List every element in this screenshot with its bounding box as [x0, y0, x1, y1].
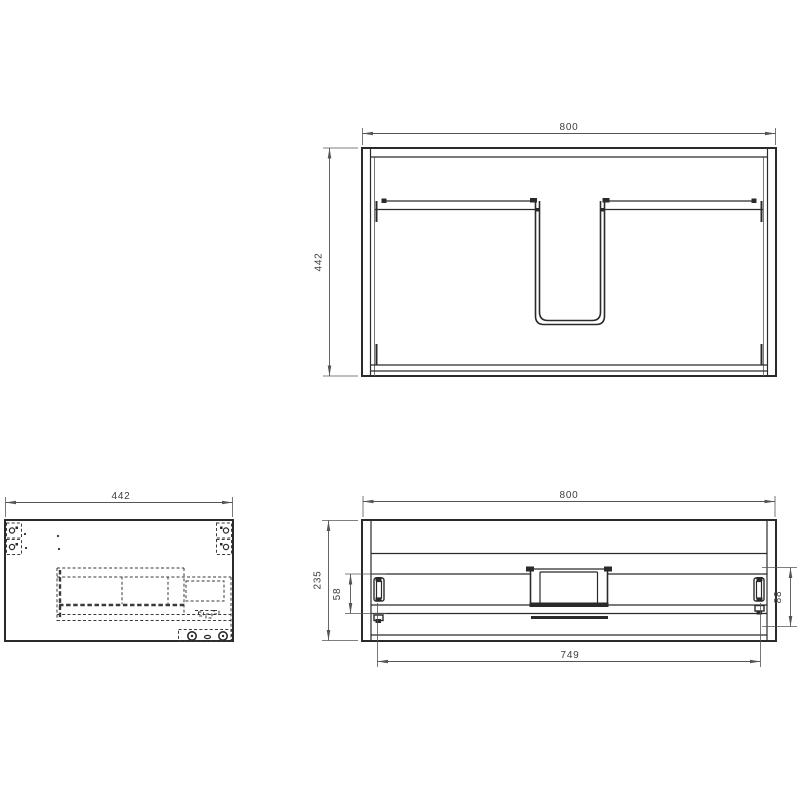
drawer-back-edge	[375, 198, 763, 365]
dim-label-rail-height: 88	[773, 591, 784, 604]
dim-width-top-view: 800	[363, 122, 776, 145]
dim-label-opening-width: 749	[560, 650, 579, 661]
cam-pin	[220, 543, 223, 546]
dim-depth-top-view: 442	[314, 148, 359, 376]
hole-mark	[24, 533, 26, 535]
drawer-hidden-outline	[57, 568, 232, 641]
end-cap	[603, 198, 610, 203]
bracket-cap	[757, 577, 763, 581]
front-view: 800 235 58 88 749	[313, 490, 798, 667]
drawer-slide-bracket-right	[754, 577, 764, 615]
dim-label-front-width: 800	[559, 490, 578, 501]
drawer-slide-bracket-left	[374, 577, 384, 623]
dim-label-front-height: 235	[313, 570, 324, 589]
hole-mark	[57, 535, 59, 537]
roller-detail	[179, 630, 232, 642]
cam-pin	[16, 543, 19, 546]
cam-glyph	[9, 528, 14, 533]
cam-glyph	[223, 528, 228, 533]
drain-recess	[526, 567, 612, 608]
cam-glyph	[223, 544, 228, 549]
bracket-cap	[757, 598, 763, 602]
bracket-clip	[755, 606, 764, 612]
dim-height-front-view: 235	[313, 521, 359, 641]
dim-label-slide-offset: 58	[332, 588, 343, 601]
hole-mark	[58, 548, 60, 550]
hole-mark	[25, 547, 27, 549]
top-view-outline	[362, 148, 776, 376]
dim-label-top-width: 800	[559, 122, 578, 133]
cam-glyph	[9, 544, 14, 549]
top-view: 800 442	[314, 122, 777, 376]
cam-pin	[220, 527, 223, 530]
sink-plumbing-cutout	[536, 201, 605, 325]
dowel-holes	[24, 533, 60, 550]
technical-drawing-page: 800 442	[0, 0, 800, 800]
end-cap	[382, 199, 387, 204]
front-view-outline	[362, 520, 776, 641]
bracket-cap	[376, 598, 382, 602]
end-cap	[752, 199, 757, 204]
dim-label-side-depth: 442	[111, 491, 130, 502]
drawing-canvas: 800 442	[0, 0, 800, 800]
cutout-inner-wall	[540, 201, 601, 321]
roller-axle	[191, 635, 193, 637]
slot-mark	[205, 635, 211, 638]
cam-lock-fittings	[7, 523, 232, 555]
bracket-clip-pad	[757, 611, 763, 615]
recess-base-band	[530, 603, 609, 608]
cutout-outer-wall	[536, 201, 605, 325]
dim-width-front-view: 800	[363, 490, 775, 517]
dim-depth-side-view: 442	[6, 491, 233, 517]
side-view: 442	[5, 491, 233, 641]
bracket-clip-pad	[376, 619, 382, 623]
cam-pin	[16, 527, 19, 530]
bracket-cap	[376, 577, 382, 581]
dim-label-top-depth: 442	[314, 252, 325, 271]
roller-axle	[222, 635, 224, 637]
rear-bracket-hidden	[186, 581, 224, 601]
runner-clip-detail	[195, 611, 219, 619]
